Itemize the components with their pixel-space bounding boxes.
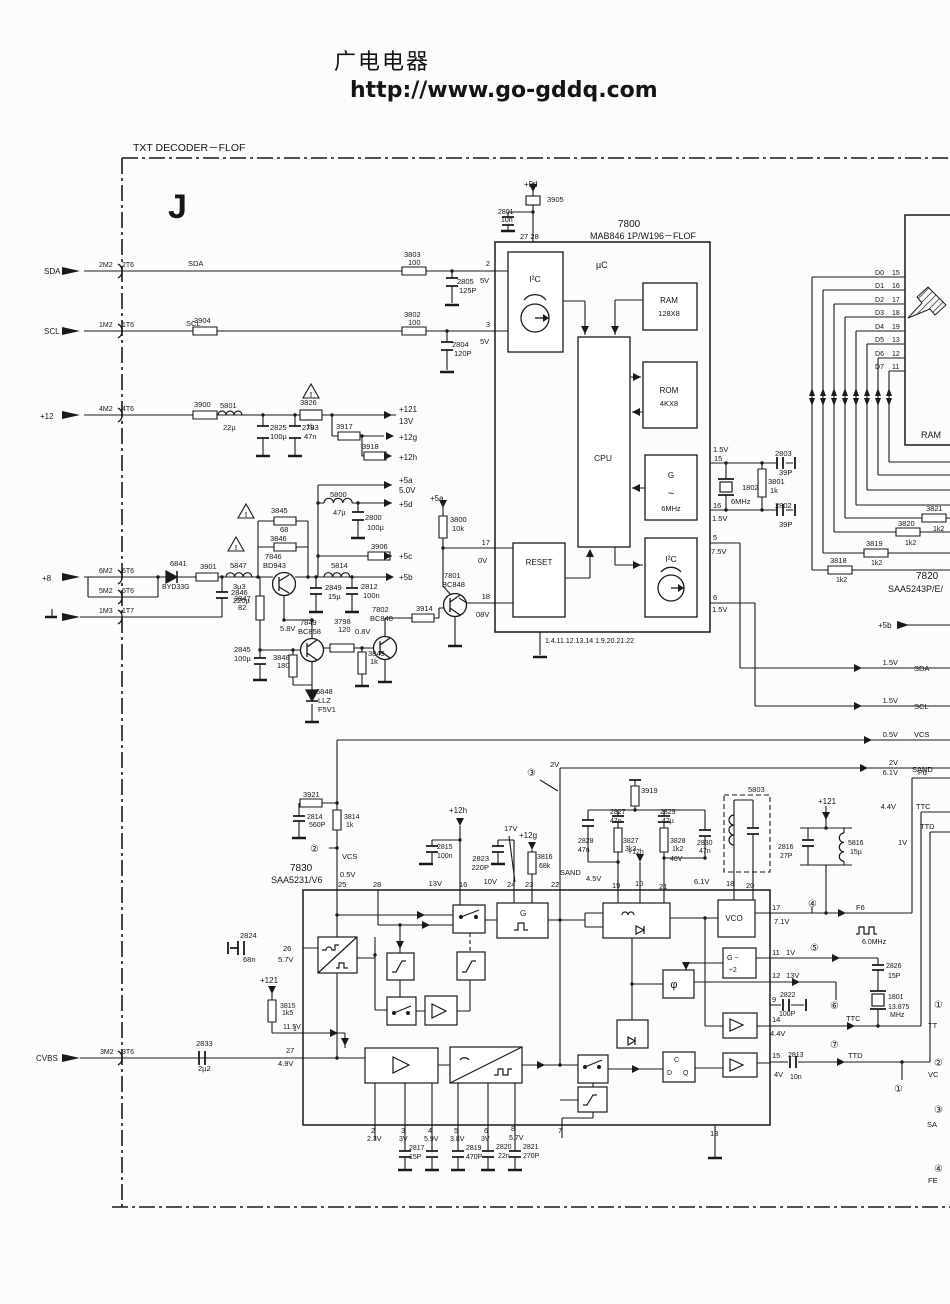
label-27: 0V (478, 556, 487, 565)
label-52: D3 (875, 310, 884, 317)
label-150: 180 (277, 661, 290, 670)
label-263: 15P (888, 973, 901, 980)
label-314: SA (927, 1120, 937, 1129)
label-252: 17 (772, 903, 780, 912)
label-307: 270P (523, 1153, 540, 1160)
label-223: 47n (610, 818, 622, 825)
warning-icons (228, 384, 319, 551)
label-53: 18 (892, 310, 900, 317)
label-281: 15 (772, 1051, 780, 1060)
label-181: 100n (363, 591, 380, 600)
label-257: G ~ (727, 955, 738, 962)
label-100: 3904 (194, 316, 211, 325)
label-284: 10n (790, 1074, 802, 1081)
label-297: 3.8V (450, 1136, 465, 1143)
label-175: +5c (399, 552, 412, 561)
label-60: D7 (875, 364, 884, 371)
label-180: 2812 (361, 582, 378, 591)
label-176: 5814 (331, 561, 348, 570)
label-275: 14 (772, 1015, 780, 1024)
label-93: 100 (408, 258, 421, 267)
label-205: 2815 (437, 844, 453, 851)
label-185: 2833 (196, 1039, 213, 1048)
label-317: ② (310, 844, 319, 855)
label-29: 08V (476, 610, 489, 619)
label-267: ⑥ (830, 1001, 839, 1012)
label-18: 6MHz (661, 504, 681, 513)
label-301: 3V (481, 1136, 490, 1143)
label-47: 15 (892, 270, 900, 277)
label-90: 2T6 (122, 262, 134, 269)
label-127: 5T6 (122, 588, 134, 595)
label-121: 3918 (362, 442, 379, 451)
label-152: LLZ (318, 696, 331, 705)
label-144: 2845 (234, 645, 251, 654)
label-78: 0.5V (883, 730, 898, 739)
label-58: D6 (875, 351, 884, 358)
label-289: 2.3V (367, 1136, 382, 1143)
label-34: 1802 (742, 483, 759, 492)
label-51: 17 (892, 297, 900, 304)
label-57: 13 (892, 337, 900, 344)
label-230: +12h (628, 849, 644, 856)
label-212: 10V (484, 877, 497, 886)
label-107: 4T6 (122, 406, 134, 413)
label-46: D0 (875, 270, 884, 277)
label-240: 18 (726, 879, 734, 888)
label-288: 2 (371, 1126, 375, 1135)
label-39: 2802 (775, 501, 792, 510)
label-234: 47n (699, 848, 711, 855)
label-277: ⑦ (830, 1040, 839, 1051)
label-156: 0.8V (355, 627, 370, 636)
label-2: +5d (524, 180, 538, 189)
label-295: 5.9V (424, 1136, 439, 1143)
label-197: 1 (293, 1026, 297, 1033)
label-294: 4 (428, 1126, 432, 1135)
label-274: TTC (846, 1014, 861, 1023)
label-291: 3V (399, 1136, 408, 1143)
label-189: 2824 (240, 931, 257, 940)
label-165: 3800 (450, 515, 467, 524)
label-30: 1.5V (713, 445, 728, 454)
label-282: 4V (774, 1070, 783, 1079)
label-63: 3821 (926, 504, 943, 513)
label-187: 27 (286, 1046, 294, 1055)
label-319: 2814 (307, 814, 323, 821)
pulse-glyph-6mhz (856, 927, 877, 934)
label-120: +12g (399, 433, 417, 442)
label-169: +5a (399, 476, 413, 485)
label-128: 1M3 (99, 608, 113, 615)
label-151: 6848 (316, 687, 333, 696)
label-35: 3801 (768, 477, 785, 486)
label-167: 5800 (330, 490, 347, 499)
label-239: 6.1V (694, 877, 709, 886)
label-321: 3814 (344, 814, 360, 821)
label-22: 2 (486, 259, 490, 268)
label-160: 1k (370, 657, 378, 666)
label-222: 2827 (610, 809, 626, 816)
label-65: 3820 (898, 519, 915, 528)
label-192: 5.7V (278, 955, 293, 964)
label-208: 16 (459, 880, 467, 889)
label-207: 13V (429, 879, 442, 888)
label-67: 3819 (866, 539, 883, 548)
label-61: 11 (892, 364, 899, 371)
label-83: F6 (918, 768, 927, 777)
label-89: 2M2 (99, 262, 113, 269)
label-72: SAA5243P/E/ (888, 584, 944, 594)
label-278: C (674, 1057, 679, 1064)
label-305: 5.7V (509, 1135, 524, 1142)
label-105: +12 (40, 412, 54, 421)
label-116: 1b (306, 422, 314, 431)
label-131: BYD33G (162, 584, 190, 591)
label-323: ! (245, 512, 247, 519)
label-246: 5816 (848, 840, 864, 847)
label-130: 6841 (170, 559, 187, 568)
label-218: 22 (551, 880, 559, 889)
label-168: 47µ (333, 508, 346, 517)
label-198: 7830 (290, 863, 313, 874)
label-87: 1V (898, 838, 907, 847)
label-171: +5d (399, 500, 413, 509)
label-45: 1.5V (712, 605, 727, 614)
label-97: 1M2 (99, 322, 113, 329)
label-194: 3815 (280, 1003, 296, 1010)
label-14: 4KX8 (660, 399, 678, 408)
label-33: 39P (779, 468, 792, 477)
label-235: 46V (670, 856, 683, 863)
label-258: ÷2 (729, 967, 737, 974)
label-145: 100µ (234, 654, 252, 663)
label-283: 2813 (788, 1052, 804, 1059)
label-226: 2828 (578, 838, 594, 845)
label-138: 68 (280, 525, 288, 534)
label-261: ⑤ (810, 943, 819, 954)
label-304: 8 (511, 1124, 515, 1133)
label-312: VC (928, 1070, 939, 1079)
label-13: ROM (660, 386, 679, 395)
label-16: G (668, 471, 674, 480)
label-59: 12 (892, 351, 900, 358)
label-73: +5b (878, 621, 892, 630)
label-94: 2805 (457, 277, 474, 286)
label-202: 25 (338, 880, 346, 889)
label-157: 7802 (372, 605, 389, 614)
label-316: FE (928, 1176, 938, 1185)
label-293: 15P (409, 1154, 422, 1161)
label-262: 2826 (886, 963, 902, 970)
label-117: +121 (399, 405, 418, 414)
label-114: 47n (304, 432, 317, 441)
label-108: 3900 (194, 400, 211, 409)
label-166: 10k (452, 524, 464, 533)
label-272: 13.875 (888, 1004, 910, 1011)
label-320: 560P (309, 822, 326, 829)
label-253: 7.1V (774, 917, 789, 926)
label-287: 13 (710, 1129, 718, 1138)
label-280: Q (683, 1070, 689, 1077)
label-64: 1k2 (933, 526, 944, 533)
label-38: 16 (713, 501, 721, 510)
label-146: 5.8V (280, 624, 295, 633)
label-255: F6 (856, 903, 865, 912)
label-225: 47µ (662, 818, 674, 825)
label-132: 3901 (200, 562, 217, 571)
label-318: 3921 (303, 790, 320, 799)
label-102: 100 (408, 318, 421, 327)
label-88: SDA (44, 267, 61, 276)
label-40: 1.5V (712, 514, 727, 523)
label-37: 6MHz (731, 497, 751, 506)
label-164: +5a (430, 494, 444, 503)
label-213: 24 (507, 880, 515, 889)
label-106: 4M2 (99, 406, 113, 413)
label-142: 3847 (234, 594, 251, 603)
label-199: SAA5231/V6 (271, 875, 323, 885)
label-184: 3T6 (122, 1049, 134, 1056)
label-163: BC848 (442, 580, 465, 589)
label-119: 3917 (336, 422, 353, 431)
label-238: 21 (659, 882, 667, 891)
label-31: 15 (714, 454, 722, 463)
label-264: φ (670, 979, 677, 991)
label-177: +5b (399, 573, 413, 582)
label-4: 2801 (498, 209, 514, 216)
label-155: 120 (338, 625, 351, 634)
label-260: 1V (786, 948, 795, 957)
label-48: D1 (875, 283, 884, 290)
label-299: 470P (466, 1154, 483, 1161)
label-237: 10 (635, 879, 643, 888)
label-211: 220P (471, 863, 489, 872)
label-95: 125P (459, 286, 477, 295)
ic-7830-blocks (318, 900, 757, 1112)
label-313: ③ (934, 1105, 943, 1116)
label-80: 2V (889, 758, 898, 767)
label-118: 13V (399, 417, 414, 426)
label-254: ④ (808, 899, 817, 910)
label-77: SCL (914, 702, 929, 711)
label-26: 17 (482, 538, 490, 547)
label-56: D5 (875, 337, 884, 344)
label-25: 5V (480, 337, 489, 346)
label-69: 3818 (830, 556, 847, 565)
label-241: 20 (746, 881, 754, 890)
label-12: 128X8 (658, 309, 680, 318)
label-66: 1k2 (905, 540, 916, 547)
label-204: +12h (449, 806, 467, 815)
label-79: VCS (914, 730, 929, 739)
label-133: 5847 (230, 561, 247, 570)
label-206: 100n (437, 853, 453, 860)
label-140: 7846 (265, 552, 282, 561)
label-178: 2849 (325, 583, 342, 592)
label-68: 1k2 (871, 560, 882, 567)
label-256: 6.0MHz (862, 939, 887, 946)
label-0: TXT DECODER－FLOF (133, 142, 245, 154)
label-161: 3914 (416, 604, 433, 613)
label-200: VCS (342, 852, 357, 861)
label-292: 2817 (409, 1145, 425, 1152)
label-242: 5803 (748, 785, 765, 794)
label-186: 2µ2 (198, 1064, 211, 1073)
label-259: 11 (772, 948, 780, 957)
label-10: I²C (529, 274, 540, 284)
label-36: 1k (770, 486, 778, 495)
label-42: 5 (713, 533, 717, 542)
wires (52, 182, 950, 1170)
label-231: 3828 (670, 838, 686, 845)
label-143: 82 (238, 603, 246, 612)
label-24: 3 (486, 320, 490, 329)
label-84: 4.4V (881, 802, 896, 811)
label-285: TTD (848, 1051, 863, 1060)
label-303: 22n (498, 1153, 510, 1160)
label-17: ~ (668, 488, 674, 500)
label-75: SDA (914, 664, 929, 673)
label-85: TTC (916, 802, 931, 811)
label-141: BD943 (263, 561, 286, 570)
label-210: 2823 (472, 854, 489, 863)
label-147: 7849 (300, 618, 317, 627)
label-23: 5V (480, 276, 489, 285)
label-173: 100µ (367, 523, 385, 532)
label-245: 27P (780, 853, 793, 860)
label-310: TT (928, 1021, 938, 1030)
label-43: 7.5V (711, 547, 726, 556)
resistors (193, 196, 946, 1022)
label-8: MAB846 1P/W196－FLOF (590, 231, 697, 241)
label-21: 1.4.11.12.13.14 1.9.20.21.22 (545, 638, 634, 645)
label-44: 6 (713, 593, 717, 602)
label-15: CPU (594, 453, 612, 463)
label-7: 7800 (618, 219, 641, 230)
label-179: 15µ (328, 592, 341, 601)
label-298: 2819 (466, 1145, 482, 1152)
ram-7820-block (905, 215, 950, 445)
label-247: 15µ (850, 849, 862, 856)
label-270: 100P (779, 1011, 796, 1018)
label-172: 2800 (365, 513, 382, 522)
label-112: 100µ (270, 432, 288, 441)
label-219: SAND (560, 868, 581, 877)
label-153: F5V1 (318, 705, 336, 714)
arrowheads (62, 184, 909, 1073)
label-266: 13V (786, 971, 799, 980)
label-315: ④ (934, 1164, 943, 1175)
label-209: 17V (504, 824, 517, 833)
label-221: 3919 (641, 786, 658, 795)
label-1: J (168, 188, 187, 226)
label-224: 2829 (660, 809, 676, 816)
label-104: 120P (454, 349, 472, 358)
label-248: ③ (527, 768, 536, 779)
label-71: 7820 (916, 571, 939, 582)
label-62: RAM (921, 430, 941, 440)
label-19: RESET (526, 558, 553, 567)
label-98: 1T6 (122, 322, 134, 329)
label-124: 6M2 (99, 568, 113, 575)
label-123: +8 (42, 574, 52, 583)
label-96: SCL (44, 327, 60, 336)
label-215: 3816 (537, 854, 553, 861)
label-125: 6T6 (122, 568, 134, 575)
label-300: 6 (484, 1126, 488, 1135)
label-308: 7 (558, 1126, 562, 1135)
label-309: ① (934, 1000, 943, 1011)
schematic-canvas: TXT DECODER－FLOFJ+5d3905280110n27 287800… (0, 0, 950, 1304)
label-182: CVBS (36, 1054, 58, 1063)
label-82: 6.1V (883, 768, 898, 777)
label-122: +12h (399, 453, 417, 462)
label-311: ② (934, 1058, 943, 1069)
label-129: 1T7 (122, 608, 134, 615)
label-158: BC848 (370, 614, 393, 623)
label-28: 18 (482, 592, 490, 601)
label-233: 2830 (697, 840, 713, 847)
label-216: 68k (539, 863, 551, 870)
label-232: 1k2 (672, 846, 683, 853)
label-41: 39P (779, 520, 792, 529)
label-203: 28 (373, 880, 381, 889)
label-190: 68n (243, 955, 256, 964)
label-290: 3 (401, 1126, 405, 1135)
label-268: 9 (772, 995, 776, 1004)
schematic-page: 广电电器 http://www.go-gddq.com (0, 0, 950, 1304)
label-286: ① (894, 1084, 903, 1095)
label-6: 27 28 (520, 232, 539, 241)
label-324: ! (235, 545, 237, 552)
label-183: 3M2 (100, 1049, 114, 1056)
label-55: 19 (892, 324, 900, 331)
label-244: 2816 (778, 844, 794, 851)
label-243: +121 (818, 797, 837, 806)
label-9: µC (596, 260, 608, 270)
label-11: RAM (660, 296, 678, 305)
label-227: 47n (578, 847, 590, 854)
label-249: 2V (550, 760, 559, 769)
label-306: 2821 (523, 1144, 539, 1151)
label-325: ! (310, 392, 312, 399)
label-148: BC858 (298, 627, 321, 636)
label-236: 19 (612, 881, 620, 890)
label-32: 2803 (775, 449, 792, 458)
label-50: D2 (875, 297, 884, 304)
label-214: +12g (519, 831, 537, 840)
label-195: 1k5 (282, 1010, 293, 1017)
label-191: 26 (283, 944, 291, 953)
label-115: 3826 (300, 398, 317, 407)
label-70: 1k2 (836, 577, 847, 584)
label-269: 2822 (780, 992, 796, 999)
label-54: D4 (875, 324, 884, 331)
label-76: 1.5V (883, 696, 898, 705)
label-162: 7801 (444, 571, 461, 580)
label-49: 16 (892, 283, 900, 290)
label-296: 5 (454, 1126, 458, 1135)
label-3: 3905 (547, 195, 564, 204)
label-322: 1k (346, 822, 354, 829)
label-276: 4.4V (770, 1029, 785, 1038)
label-271: 1801 (888, 994, 904, 1001)
label-174: 3906 (371, 542, 388, 551)
label-5: 10n (501, 217, 513, 224)
label-109: 5801 (220, 401, 237, 410)
label-86: TTD (920, 822, 935, 831)
